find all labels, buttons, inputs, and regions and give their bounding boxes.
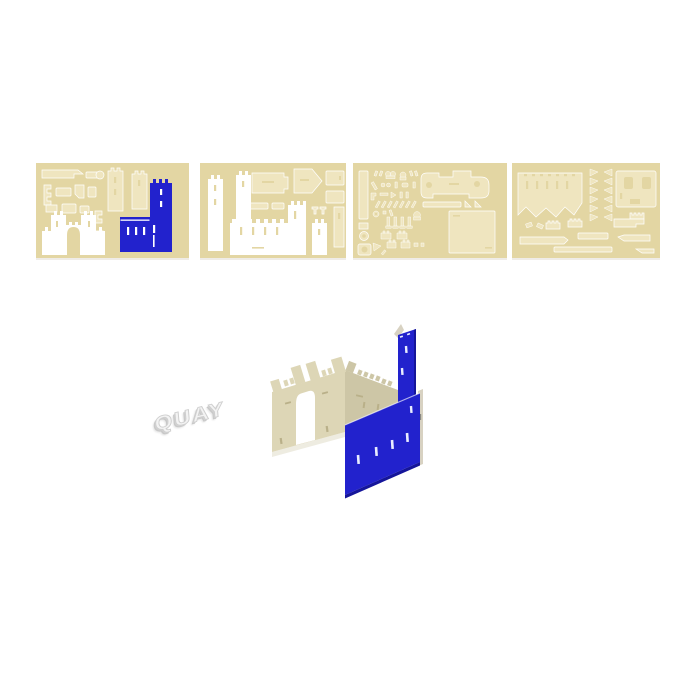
diecut-sheet-3 xyxy=(353,163,507,258)
sheet-4-graphic xyxy=(512,163,660,258)
sheet-1-graphic xyxy=(36,163,189,258)
diecut-sheet-1 xyxy=(36,163,189,258)
quay-text: QUAY xyxy=(154,396,227,435)
product-photo: QUAY xyxy=(0,0,700,700)
diecut-sheet-2 xyxy=(200,163,346,258)
assembled-castle-model xyxy=(230,318,450,518)
diecut-sheet-4 xyxy=(512,163,660,258)
sheet-3-graphic xyxy=(353,163,507,258)
sheet-2-graphic xyxy=(200,163,346,258)
